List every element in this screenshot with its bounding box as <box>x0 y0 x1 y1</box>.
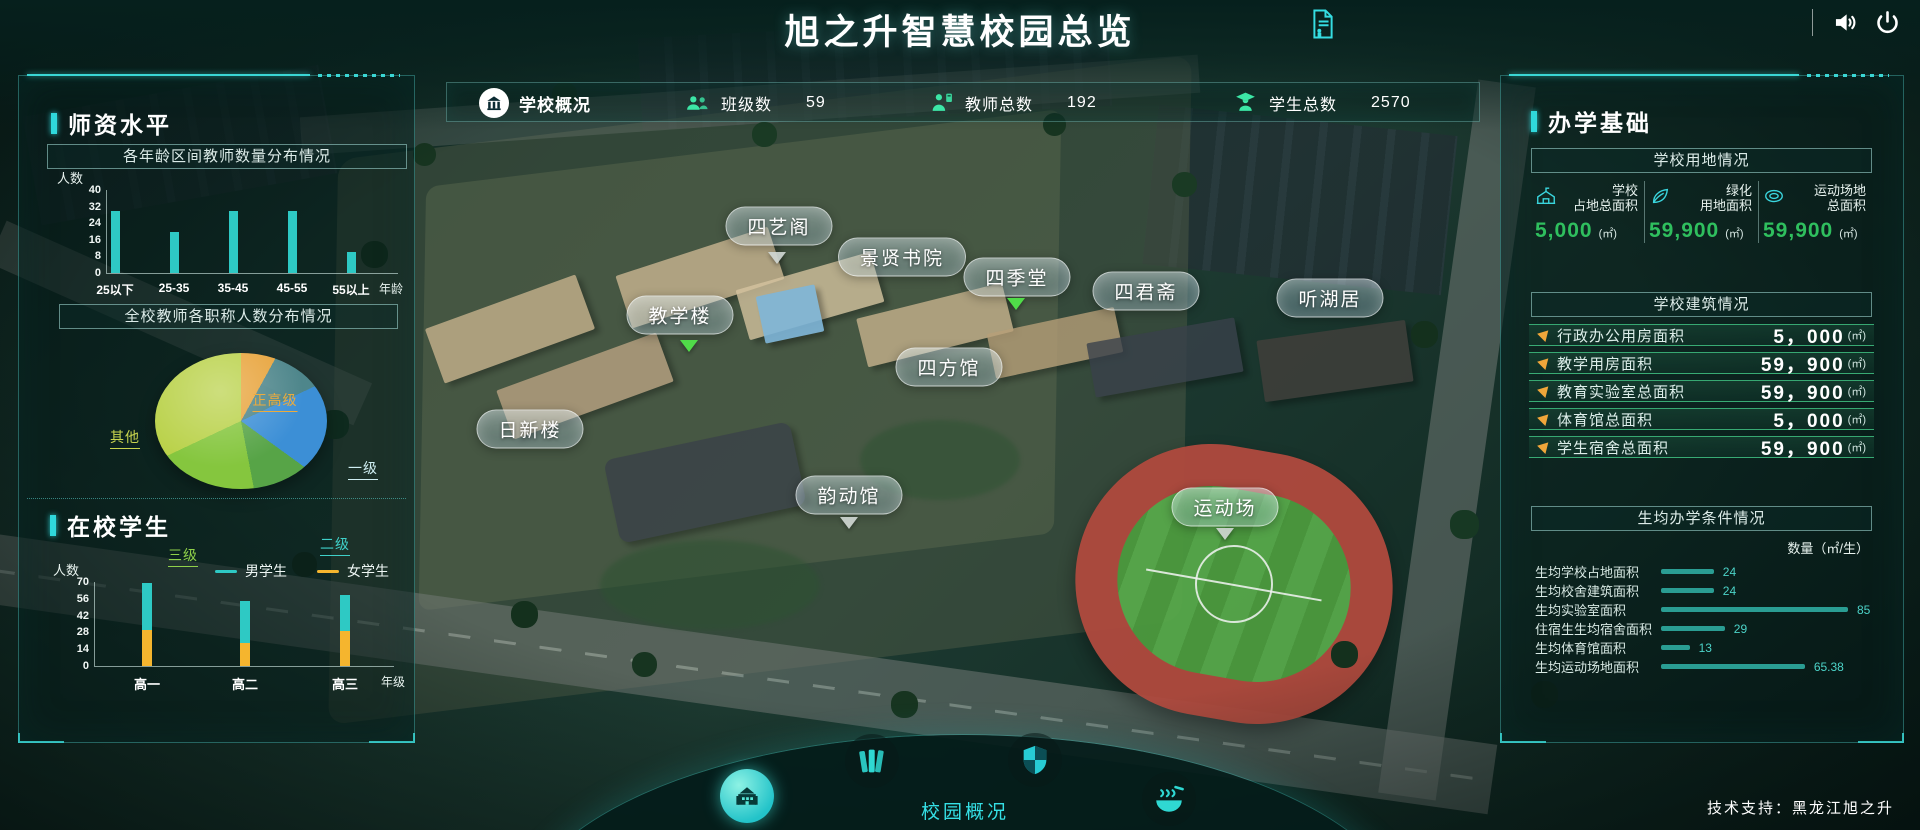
building-row: 体育馆总面积5，000(㎡) <box>1529 408 1874 430</box>
map-marker-arrow <box>680 340 698 352</box>
x-tick: 45-55 <box>277 281 308 295</box>
land-stat-unit: (㎡) <box>1839 225 1857 241</box>
building-row: 教育实验室总面积59，900(㎡) <box>1529 380 1874 402</box>
class-group-icon <box>685 90 711 116</box>
building-row-unit: (㎡) <box>1848 383 1866 399</box>
map-marker-arrow <box>840 517 858 529</box>
building-row-value: 59，900 <box>1761 434 1845 461</box>
x-tick: 高二 <box>232 674 258 693</box>
land-stat-value: 59,900 <box>1649 219 1719 243</box>
building-row-label: 体育馆总面积 <box>1557 409 1773 430</box>
dining-icon[interactable] <box>1142 772 1196 826</box>
land-stat-value: 59,900 <box>1763 219 1833 243</box>
smart-campus-dashboard: 四艺阁景贤书院四季堂四君斋听湖居教学楼四方馆日新楼韵动馆运动场 旭之升智慧校园总… <box>0 0 1920 830</box>
page-title: 旭之升智慧校园总览 <box>0 4 1920 55</box>
x-tick: 高三 <box>332 674 358 693</box>
students-bar-chart: 人数 01428425670高一高二高三 年级 <box>41 556 411 706</box>
per-student-bar <box>1661 664 1805 669</box>
map-marker-arrow <box>1216 528 1234 540</box>
school-overview-icon <box>479 88 509 118</box>
per-student-value: 65.38 <box>1814 660 1844 674</box>
per-student-bar <box>1661 645 1690 650</box>
building-row: 行政办公用房面积5，000(㎡) <box>1529 324 1874 346</box>
teacher-panel: 师资水平 各年龄区间教师数量分布情况 人数 081624324025以下25-3… <box>18 75 415 743</box>
map-label-四方馆[interactable]: 四方馆 <box>895 348 1002 387</box>
overview-label: 学校概况 <box>519 91 591 116</box>
building-row-unit: (㎡) <box>1848 355 1866 371</box>
divider <box>27 498 406 499</box>
y-tick: 14 <box>77 643 89 655</box>
land-stat-绿化: 绿化用地面积59,900(㎡) <box>1644 181 1758 243</box>
building-row-unit: (㎡) <box>1848 327 1866 343</box>
y-tick: 42 <box>77 610 89 622</box>
map-marker-arrow <box>1007 298 1025 310</box>
triangle-marker-icon <box>1536 356 1549 370</box>
building-row-value: 5，000 <box>1773 406 1844 433</box>
building-rows: 行政办公用房面积5，000(㎡)教学用房面积59，900(㎡)教育实验室总面积5… <box>1529 324 1874 464</box>
map-label-四君斋[interactable]: 四君斋 <box>1092 272 1199 311</box>
building-row-value: 59，900 <box>1761 378 1845 405</box>
map-label-教学楼[interactable]: 教学楼 <box>626 296 733 335</box>
x-tick: 35-45 <box>218 281 249 295</box>
land-stat-运动场地: 运动场地总面积59,900(㎡) <box>1758 181 1872 243</box>
bar-female-高一 <box>142 630 152 666</box>
x-tick: 55以上 <box>332 281 369 298</box>
age-bar-chart: 人数 081624324025以下25-3535-4545-5555以上 年龄 <box>41 166 406 311</box>
stat-item-教师总数: 教师总数192 <box>929 83 1097 123</box>
building-row: 教学用房面积59，900(㎡) <box>1529 352 1874 374</box>
per-student-row: 生均体育馆面积13 <box>1535 638 1880 657</box>
y-tick: 56 <box>77 593 89 605</box>
land-stat-unit: (㎡) <box>1599 225 1617 241</box>
stat-label: 教师总数 <box>965 91 1033 115</box>
teacher-icon <box>929 90 955 116</box>
stat-value: 192 <box>1067 94 1097 112</box>
stat-item-学生总数: 学生总数2570 <box>1233 83 1411 123</box>
per-student-label: 生均实验室面积 <box>1535 600 1655 619</box>
building-row-label: 教育实验室总面积 <box>1557 381 1761 402</box>
triangle-marker-icon <box>1536 412 1549 426</box>
land-stats: 学校占地总面积5,000(㎡)绿化用地面积59,900(㎡)运动场地总面积59,… <box>1531 181 1872 243</box>
bar-male-高三 <box>340 595 350 631</box>
x-axis-label: 年龄 <box>379 280 403 297</box>
school-overview-group: 学校概况 <box>479 83 591 123</box>
x-tick: 25-35 <box>159 281 190 295</box>
per-student-label: 生均校舍建筑面积 <box>1535 581 1655 600</box>
bar-male-高二 <box>240 601 250 643</box>
section-title-basis: 办学基础 <box>1531 104 1652 138</box>
bar-25以下 <box>111 211 120 273</box>
per-student-bar-chart: 生均学校占地面积24生均校舍建筑面积24生均实验室面积85住宿生生均宿舍面积29… <box>1535 562 1880 676</box>
x-axis-label: 年级 <box>381 673 405 690</box>
header-divider <box>1812 9 1813 36</box>
per-student-row: 生均学校占地面积24 <box>1535 562 1880 581</box>
per-student-row: 生均运动场地面积65.38 <box>1535 657 1880 676</box>
land-stat-label: 绿化用地面积 <box>1671 183 1752 213</box>
map-label-四季堂[interactable]: 四季堂 <box>963 258 1070 297</box>
building-row: 学生宿舍总面积59，900(㎡) <box>1529 436 1874 458</box>
map-label-韵动馆[interactable]: 韵动馆 <box>795 476 902 515</box>
y-tick: 32 <box>89 201 101 213</box>
building-header: 学校建筑情况 <box>1531 292 1872 317</box>
bar-female-高二 <box>240 643 250 666</box>
building-row-label: 行政办公用房面积 <box>1557 325 1773 346</box>
building-row-value: 5，000 <box>1773 322 1844 349</box>
per-student-bar <box>1661 588 1714 593</box>
per-student-row: 住宿生生均宿舍面积29 <box>1535 619 1880 638</box>
stat-item-班级数: 班级数59 <box>685 83 826 123</box>
x-tick: 25以下 <box>96 281 133 298</box>
per-student-label: 生均学校占地面积 <box>1535 562 1655 581</box>
sports-field-icon <box>1763 185 1785 207</box>
y-tick: 0 <box>83 660 89 672</box>
title-pie-header: 全校教师各职称人数分布情况 <box>59 304 398 329</box>
pie-label-一级: 一级 <box>348 458 378 480</box>
map-marker-arrow <box>768 252 786 264</box>
pie-label-二级: 二级 <box>320 534 350 556</box>
y-tick: 28 <box>77 626 89 638</box>
per-student-value: 24 <box>1723 565 1736 579</box>
y-tick: 16 <box>89 234 101 246</box>
bar-55以上 <box>347 252 356 273</box>
stat-value: 59 <box>806 94 826 112</box>
per-student-label: 生均运动场地面积 <box>1535 657 1655 676</box>
security-icon[interactable] <box>1008 733 1062 787</box>
stat-label: 学生总数 <box>1269 91 1337 115</box>
per-student-value: 29 <box>1734 622 1747 636</box>
per-student-bar <box>1661 607 1848 612</box>
land-stat-label: 学校占地总面积 <box>1557 183 1638 213</box>
per-student-row: 生均实验室面积85 <box>1535 600 1880 619</box>
building-row-value: 59，900 <box>1761 350 1845 377</box>
land-stat-label: 运动场地总面积 <box>1785 183 1866 213</box>
stat-value: 2570 <box>1371 94 1411 112</box>
per-student-bar <box>1661 569 1714 574</box>
teacher-title-pie-chart <box>155 353 327 489</box>
building-row-label: 教学用房面积 <box>1557 353 1761 374</box>
student-icon <box>1233 90 1259 116</box>
per-student-value: 24 <box>1723 584 1736 598</box>
y-tick: 70 <box>77 576 89 588</box>
y-tick: 8 <box>95 250 101 262</box>
triangle-marker-icon <box>1536 328 1549 342</box>
section-title-students: 在校学生 <box>50 508 171 542</box>
bar-female-高三 <box>340 631 350 666</box>
building-row-label: 学生宿舍总面积 <box>1557 437 1761 458</box>
y-tick: 40 <box>89 184 101 196</box>
speaker-icon[interactable] <box>1832 9 1859 36</box>
school-building-icon <box>1535 185 1557 207</box>
map-label-四艺阁[interactable]: 四艺阁 <box>725 207 832 246</box>
per-student-label: 住宿生生均宿舍面积 <box>1535 619 1655 638</box>
map-label-运动场[interactable]: 运动场 <box>1171 488 1278 527</box>
section-title-teachers: 师资水平 <box>51 106 172 140</box>
map-label-日新楼[interactable]: 日新楼 <box>476 410 583 449</box>
triangle-marker-icon <box>1536 440 1549 454</box>
per-student-label: 生均体育馆面积 <box>1535 638 1655 657</box>
bar-35-45 <box>229 211 238 273</box>
triangle-marker-icon <box>1536 384 1549 398</box>
x-tick: 高一 <box>134 674 160 693</box>
per-student-unit-label: 数量（㎡/生） <box>1787 538 1869 557</box>
map-label-景贤书院[interactable]: 景贤书院 <box>838 238 966 277</box>
y-axis-label: 人数 <box>53 560 79 579</box>
land-stat-unit: (㎡) <box>1725 225 1743 241</box>
power-icon[interactable] <box>1874 9 1901 36</box>
per-student-row: 生均校舍建筑面积24 <box>1535 581 1880 600</box>
bar-male-高一 <box>142 583 152 630</box>
y-tick: 0 <box>95 267 101 279</box>
bar-45-55 <box>288 211 297 273</box>
land-header: 学校用地情况 <box>1531 148 1872 173</box>
stat-label: 班级数 <box>721 91 772 115</box>
map-label-听湖居[interactable]: 听湖居 <box>1276 279 1383 318</box>
bar-25-35 <box>170 232 179 274</box>
y-axis-label: 人数 <box>57 168 83 187</box>
pie-label-其他: 其他 <box>110 427 140 449</box>
greenery-icon <box>1649 185 1671 207</box>
per-student-value: 85 <box>1857 603 1870 617</box>
school-stats-bar: 学校概况 班级数59教师总数192学生总数2570 <box>446 82 1480 122</box>
land-stat-学校: 学校占地总面积5,000(㎡) <box>1531 181 1644 243</box>
per-student-bar <box>1661 626 1725 631</box>
building-row-unit: (㎡) <box>1848 411 1866 427</box>
tech-support-credit: 技术支持：黑龙江旭之升 <box>1707 797 1894 818</box>
per-student-header: 生均办学条件情况 <box>1531 506 1872 531</box>
report-icon[interactable] <box>1308 8 1338 40</box>
y-tick: 24 <box>89 217 101 229</box>
nav-label-campus-overview[interactable]: 校园概况 <box>895 797 1035 824</box>
campus-overview-icon[interactable] <box>720 769 774 823</box>
pie-label-正高级: 正高级 <box>253 390 298 412</box>
per-student-value: 13 <box>1699 641 1712 655</box>
school-basis-panel: 办学基础 学校用地情况 学校占地总面积5,000(㎡)绿化用地面积59,900(… <box>1500 75 1904 743</box>
land-stat-value: 5,000 <box>1535 219 1593 243</box>
library-icon[interactable] <box>845 734 899 788</box>
building-row-unit: (㎡) <box>1848 439 1866 455</box>
